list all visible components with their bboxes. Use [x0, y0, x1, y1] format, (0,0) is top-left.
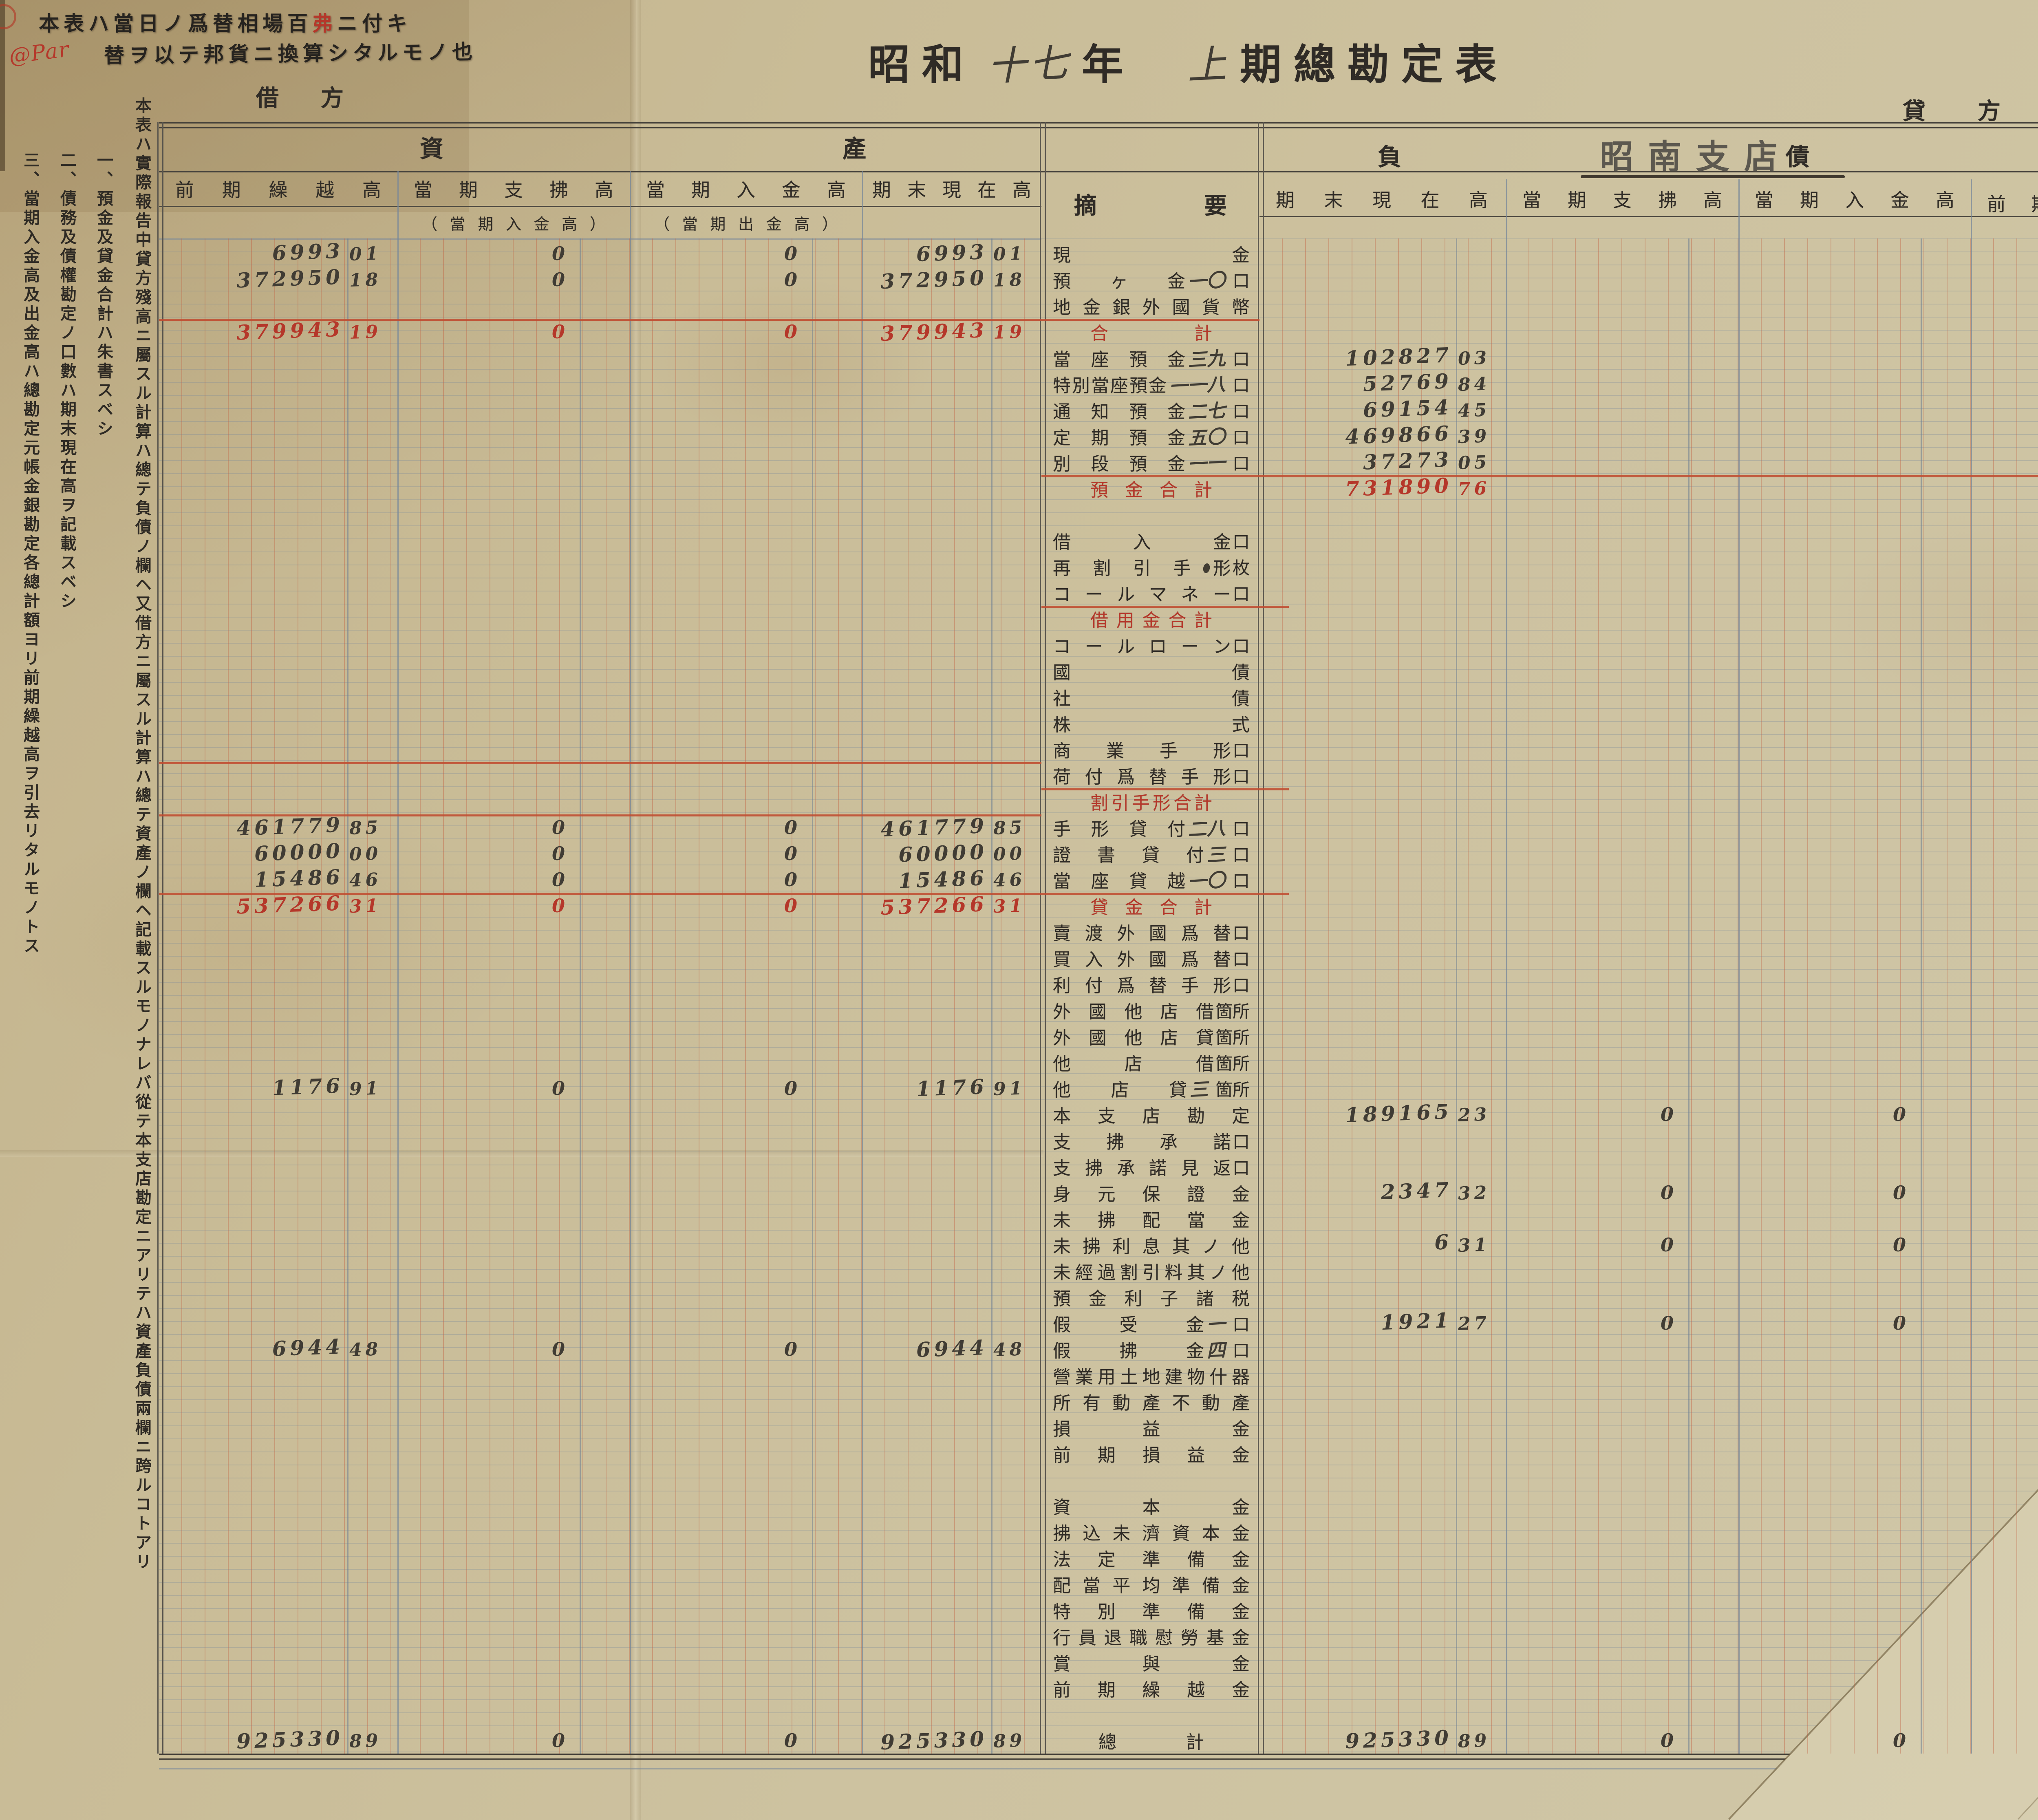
account-row: 當座貸越一〇口	[1041, 867, 1259, 893]
amount-integer: 1921	[1259, 1308, 1458, 1339]
amount-cents: 89	[993, 1729, 1042, 1752]
amount-cents: 23	[1458, 1103, 1506, 1125]
account-unit: 口	[1233, 972, 1250, 997]
amount-integer: 15486	[159, 864, 350, 895]
exchange-rate-stamp-line1: 本表ハ當日ノ爲替相場百弗ニ付キ	[39, 7, 412, 37]
amount-integer: 925330	[159, 1725, 350, 1756]
account-label: 預ヶ金	[1053, 267, 1185, 293]
amount-cell: 0	[630, 1336, 862, 1362]
account-label: 證書貸付	[1053, 841, 1204, 867]
amount-cell: 0	[397, 267, 630, 293]
debit-side-label: 借方	[256, 80, 344, 113]
account-label: 未經過割引料其ノ他	[1053, 1258, 1250, 1284]
account-row: 借入金口	[1041, 527, 1259, 554]
account-label: 株式	[1053, 710, 1250, 736]
account-count-handwritten: 一一	[1187, 448, 1226, 477]
amount-integer: 52769	[1259, 368, 1458, 399]
amount-cents: 00	[349, 842, 398, 865]
account-label: 現金	[1053, 240, 1250, 267]
account-row: 外國他店貸箇所	[1041, 1023, 1259, 1049]
amount-cell: 1548646	[159, 867, 397, 893]
amount-integer: 537266	[159, 890, 350, 921]
amount-cell: 0	[397, 1336, 630, 1362]
account-row: 未經過割引料其ノ他	[1041, 1258, 1259, 1284]
account-unit: 箇所	[1215, 1024, 1250, 1049]
account-row: 外國他店借箇所	[1041, 997, 1259, 1023]
amount-cell: 117691	[862, 1075, 1041, 1101]
money-column-ruling	[159, 238, 397, 1754]
zero-amount: 0	[1738, 1312, 1971, 1334]
amount-cell: 92533089	[1971, 1727, 2038, 1754]
account-row: 損益金	[1041, 1414, 1259, 1441]
amount-cents: 31	[349, 894, 398, 917]
amount-cell: 694448	[159, 1336, 397, 1362]
account-label: 定期預金	[1053, 423, 1185, 449]
amount-cell: 46986639	[1971, 423, 2038, 449]
table-bottom-border	[159, 1754, 2038, 1760]
account-row: 地金銀外國貨幣	[1041, 293, 1259, 319]
sen-separator-line	[991, 238, 993, 1754]
liability-header-received: 當期入金高	[1755, 181, 1954, 216]
margin-note-1: 一、預金及貸金合計ハ朱書スベシ	[88, 152, 119, 1538]
account-row: 社債	[1041, 684, 1259, 710]
account-label: 借入金	[1053, 527, 1231, 554]
amount-integer: 189165	[1259, 1099, 1458, 1130]
account-label: 利付爲替手形	[1053, 971, 1231, 997]
amount-cell: 37994319	[159, 319, 397, 345]
amount-cell: 0	[1506, 1727, 1738, 1754]
zero-amount: 0	[1738, 1234, 1971, 1256]
amount-cell: 694448	[862, 1336, 1041, 1362]
zero-amount: 0	[1506, 1312, 1738, 1334]
account-unit: 口	[1233, 1337, 1250, 1362]
account-row: 前期損益金	[1041, 1441, 1259, 1467]
account-row: 營業用土地建物什器	[1041, 1362, 1259, 1388]
zero-amount: 0	[630, 843, 862, 865]
amount-integer: 1176	[159, 1073, 350, 1103]
amount-cell: 37295018	[862, 267, 1041, 293]
account-label: 所有動產不動產	[1053, 1388, 1250, 1414]
account-label: 支拂承諾	[1053, 1127, 1231, 1154]
amount-cents: 39	[1458, 425, 1506, 447]
account-label: 通知預金	[1053, 397, 1185, 423]
amount-cell: 6000000	[862, 841, 1041, 867]
amount-cents: 91	[993, 1077, 1042, 1099]
account-label: 貸金合計	[1053, 893, 1250, 919]
zero-amount: 0	[1506, 1182, 1738, 1204]
sen-separator-line	[347, 238, 348, 1754]
liability-header-underline	[1259, 216, 2038, 217]
amount-cell: 37994319	[862, 319, 1041, 345]
amount-integer: 102827	[1970, 343, 2038, 373]
money-column-ruling	[630, 238, 862, 1754]
account-count-handwritten: 一〇	[1187, 865, 1226, 894]
asset-section-header: 資產	[159, 122, 1041, 171]
account-unit: 口	[1233, 737, 1250, 762]
amount-integer: 69154	[1259, 395, 1458, 426]
amount-cents: 00	[993, 842, 1042, 865]
zero-amount: 0	[397, 1077, 630, 1099]
margin-note-2: 二、債務及債權勘定ノ口數ハ期末現在高ヲ記載スベシ	[51, 152, 83, 1538]
account-unit: 口	[1233, 424, 1250, 449]
account-unit: 箇所	[1215, 1050, 1250, 1075]
account-count-handwritten: 二八	[1187, 813, 1226, 842]
asset-header-received: 當期入金高	[646, 171, 846, 206]
account-label: 手形貸付	[1053, 814, 1185, 841]
amount-cents: 45	[1458, 399, 1506, 421]
amount-cell: 192127	[1259, 1310, 1506, 1336]
account-row: 本支店勘定	[1041, 1101, 1259, 1127]
account-label: 地金銀外國貨幣	[1053, 293, 1250, 319]
amount-integer: 379943	[862, 318, 994, 346]
account-unit: 口	[1233, 580, 1250, 605]
account-label: 商業手形	[1053, 736, 1231, 762]
title-year-suffix: 年	[1082, 31, 1136, 91]
amount-integer: 37273	[1970, 447, 2038, 478]
amount-cents: 91	[349, 1077, 398, 1099]
account-label: 外國他店借	[1053, 997, 1214, 1023]
amount-integer: 372950	[159, 264, 350, 295]
account-row: 商業手形口	[1041, 736, 1259, 762]
account-unit: 口	[1233, 815, 1250, 840]
stamp-text: ニ付キ	[337, 12, 412, 35]
account-label: 賞與金	[1053, 1649, 1250, 1675]
amount-integer: 379943	[159, 316, 350, 347]
account-label: 特別準備金	[1053, 1597, 1250, 1623]
account-unit: 口	[1233, 920, 1250, 944]
amount-cell: 0	[630, 841, 862, 867]
account-row: 割引手形合計	[1041, 788, 1259, 814]
account-row: 借用金合計	[1041, 606, 1259, 632]
amount-cell: 699301	[159, 240, 397, 267]
amount-cell: 0	[1506, 1310, 1738, 1336]
amount-cents: 46	[349, 868, 398, 891]
stamp-red-char: 弗	[312, 12, 337, 35]
zero-amount: 0	[397, 869, 630, 891]
account-label: 買入外國爲替	[1053, 945, 1231, 971]
account-row: 支拂承諾口	[1041, 1127, 1259, 1154]
amount-integer: 6944	[862, 1335, 994, 1363]
zero-amount: 0	[630, 1730, 862, 1752]
money-column-ruling	[862, 238, 1041, 1754]
zero-amount: 0	[1506, 1103, 1738, 1125]
amount-cell: 0	[397, 841, 630, 867]
margin-note-3: 三、當期入金高及出金高ハ總勘定元帳金銀勘定各總計額ヨリ前期繰越高ヲ引去リタルモノ…	[14, 152, 46, 1538]
zero-amount: 0	[630, 869, 862, 891]
account-unit: 口	[1233, 372, 1250, 397]
amount-cents: 03	[1458, 346, 1506, 369]
account-row: 賞與金	[1041, 1649, 1259, 1675]
account-label: 假拂金	[1053, 1336, 1204, 1362]
account-count-handwritten: 二七	[1187, 396, 1226, 425]
amount-cell: 3727305	[1259, 449, 1506, 475]
amount-integer: 52769	[1970, 369, 2038, 399]
amount-cell: 92533089	[159, 1727, 397, 1754]
amount-cents: 76	[1458, 477, 1506, 499]
amount-cell: 0	[1506, 1101, 1738, 1127]
account-label: 社債	[1053, 684, 1250, 710]
amount-cell: 10282703	[1971, 345, 2038, 371]
amount-integer: 15486	[862, 865, 994, 894]
margin-notes: 一、預金及貸金合計ハ朱書スベシ 二、債務及債權勘定ノ口數ハ期末現在高ヲ記載スベシ…	[11, 152, 119, 1538]
amount-cell: 0	[397, 240, 630, 267]
amount-cell: 117691	[159, 1075, 397, 1101]
amount-cell: 53726631	[862, 893, 1041, 919]
account-row: 他店貸三箇所	[1041, 1075, 1259, 1101]
liability-header-prev-balance: 前期繰越高	[1987, 185, 2038, 220]
account-unit: 口	[1233, 398, 1250, 423]
account-unit: 枚	[1233, 554, 1250, 579]
exchange-rate-stamp-line2: 替ヲ以テ邦貨ニ換算シタルモノ也	[104, 35, 477, 69]
amount-cell: 53726631	[159, 893, 397, 919]
amount-integer: 2347	[1259, 1177, 1458, 1208]
zero-amount: 0	[630, 1077, 862, 1099]
column-divider	[630, 171, 631, 1754]
amount-cents: 18	[993, 268, 1042, 291]
account-label: 損益金	[1053, 1414, 1250, 1441]
account-row: 國債	[1041, 658, 1259, 684]
account-unit: 箇所	[1215, 998, 1250, 1023]
account-row: 預金利子諸税	[1041, 1284, 1259, 1310]
asset-header-paid: 當期支拂高	[414, 171, 613, 206]
amount-cell: 6915445	[1971, 397, 2038, 423]
asset-subheader-received: （當期入金高）	[422, 207, 605, 238]
amount-integer: 925330	[862, 1726, 994, 1755]
amount-cell: 0	[630, 867, 862, 893]
account-label: 前期繰越金	[1053, 1675, 1250, 1701]
amount-cents: 01	[349, 242, 398, 265]
amount-cell: 0	[397, 893, 630, 919]
account-row: 他店借箇所	[1041, 1049, 1259, 1075]
amount-cell: 0	[630, 893, 862, 919]
account-label: 荷付爲替手形	[1053, 762, 1231, 788]
account-label: 當座預金	[1053, 345, 1185, 371]
account-unit: 口	[1233, 633, 1250, 657]
summary-column-header: 摘要	[1041, 173, 1259, 234]
account-unit: 口	[1233, 841, 1250, 866]
account-count-handwritten: 一一八	[1168, 369, 1226, 399]
account-label: 別段預金	[1053, 449, 1185, 475]
amount-integer: 469866	[1259, 421, 1458, 452]
account-label: 當座貸越	[1053, 867, 1185, 893]
amount-cents: 31	[1458, 1233, 1506, 1256]
amount-cell: 0	[397, 867, 630, 893]
account-row: 未拂利息其ノ他	[1041, 1232, 1259, 1258]
liability-header-end-balance: 期末現在高	[1276, 181, 1488, 216]
zero-amount: 0	[630, 895, 862, 917]
account-label: 預金利子諸税	[1053, 1284, 1250, 1310]
credit-side-label: 貸方	[1903, 93, 2001, 126]
account-label: 他店借	[1053, 1049, 1214, 1075]
account-label: 他店貸	[1053, 1075, 1187, 1101]
account-row: コールマネー口	[1041, 580, 1259, 606]
amount-integer: 731890	[1259, 473, 1458, 504]
amount-cell: 0	[1738, 1101, 1971, 1127]
asset-header-prev-balance: 前期繰越高	[175, 171, 381, 206]
amount-cell: 0	[1738, 1727, 1971, 1754]
amount-cell: 46177985	[862, 814, 1041, 841]
title-era: 昭和	[868, 31, 976, 91]
amount-cents: 85	[349, 816, 398, 838]
amount-integer: 469866	[1970, 421, 2038, 452]
amount-cell: 0	[397, 1075, 630, 1101]
amount-integer: 6	[1970, 1230, 2038, 1260]
account-row: 假拂金四口	[1041, 1336, 1259, 1362]
zero-amount: 0	[1738, 1182, 1971, 1204]
zero-amount: 0	[397, 269, 630, 291]
liability-section-header: 負債	[1259, 130, 2038, 179]
account-label: 法定準備金	[1053, 1545, 1250, 1571]
bottom-ledger-line	[159, 1768, 2038, 1769]
account-count-handwritten: 一〇	[1187, 265, 1226, 294]
amount-integer: 925330	[1259, 1725, 1458, 1756]
account-count-handwritten: 三	[1206, 840, 1226, 867]
account-row: 荷付爲替手形口	[1041, 762, 1259, 788]
zero-amount: 0	[630, 816, 862, 838]
amount-cell: 73189076	[1259, 475, 1506, 501]
amount-integer: 6	[1259, 1229, 1458, 1260]
account-label: 身元保證金	[1053, 1180, 1250, 1206]
account-unit: 口	[1233, 1311, 1250, 1336]
account-label: 拂込未濟資本金	[1053, 1519, 1250, 1545]
account-label: 合計	[1053, 319, 1250, 345]
zero-amount: 0	[1738, 1103, 1971, 1125]
amount-cell: 699301	[862, 240, 1041, 267]
account-unit: 口	[1233, 528, 1250, 553]
account-row: 前期繰越金	[1041, 1675, 1259, 1701]
amount-cents: 46	[993, 868, 1042, 891]
account-label: 假受金	[1053, 1310, 1204, 1336]
account-label: コールローン	[1053, 632, 1231, 658]
amount-integer: 60000	[862, 839, 994, 868]
account-row: 當座預金三九口	[1041, 345, 1259, 371]
amount-cell: 0	[630, 814, 862, 841]
amount-cell: 0	[397, 814, 630, 841]
money-column-ruling	[1738, 238, 1971, 1754]
amount-cell: 631	[1971, 1232, 2038, 1258]
amount-cents: 84	[1458, 373, 1506, 395]
amount-integer: 461779	[159, 812, 350, 843]
asset-section-label: 資產	[420, 130, 866, 164]
account-row: 通知預金二七口	[1041, 397, 1259, 423]
amount-integer: 6993	[862, 239, 994, 268]
amount-cell: 0	[397, 319, 630, 345]
account-label: 割引手形合計	[1053, 788, 1250, 814]
column-divider	[1738, 179, 1740, 1754]
zero-amount: 0	[397, 1730, 630, 1752]
account-row: 手形貸付二八口	[1041, 814, 1259, 841]
amount-cents: 48	[349, 1338, 398, 1360]
amount-cents: 89	[349, 1729, 398, 1752]
amount-cell: 37295018	[159, 267, 397, 293]
account-row: 別段預金一一口	[1041, 449, 1259, 475]
account-row: 證書貸付三口	[1041, 841, 1259, 867]
title-term-handwritten: 上	[1185, 32, 1230, 90]
account-row: 預金合計	[1041, 475, 1259, 501]
zero-amount: 0	[630, 1338, 862, 1360]
amount-cell: 73189076	[1971, 475, 2038, 501]
account-row: 定期預金五〇口	[1041, 423, 1259, 449]
amount-cell: 18916523	[1259, 1101, 1506, 1127]
amount-cents: 19	[993, 320, 1042, 343]
account-row: 拂込未濟資本金	[1041, 1519, 1259, 1545]
title-year-handwritten: 十七	[986, 31, 1072, 91]
amount-cell: 10282703	[1259, 345, 1506, 371]
zero-amount: 0	[397, 243, 630, 265]
amount-cell: 0	[1506, 1180, 1738, 1206]
account-label: 預金合計	[1053, 475, 1250, 501]
scanned-ledger-page: 本表ハ當日ノ爲替相場百弗ニ付キ 替ヲ以テ邦貨ニ換算シタルモノ也 @Par 昭和 …	[0, 0, 2038, 1820]
amount-integer: 372950	[862, 265, 994, 294]
zero-amount: 0	[1738, 1730, 1971, 1752]
amount-integer: 731890	[1970, 473, 2038, 504]
sen-separator-line	[580, 238, 581, 1754]
account-row: 行員退職慰勞基金	[1041, 1623, 1259, 1649]
zero-amount: 0	[630, 269, 862, 291]
account-label: 賣渡外國爲替	[1053, 919, 1231, 945]
account-unit: 口	[1233, 946, 1250, 971]
account-count-handwritten: 三九	[1187, 344, 1226, 373]
account-unit: 口	[1233, 450, 1250, 475]
account-unit: 口	[1233, 1154, 1250, 1179]
liability-section-label: 負債	[1378, 138, 1809, 172]
account-count-handwritten: 五〇	[1187, 422, 1226, 451]
zero-amount: 0	[397, 895, 630, 917]
zero-amount: 0	[397, 321, 630, 343]
amount-integer: 6944	[159, 1334, 350, 1364]
amount-cents: 01	[993, 242, 1042, 265]
asset-subheader-withdrawn: （當期出金高）	[654, 207, 838, 238]
account-label: 未拂利息其ノ他	[1053, 1232, 1250, 1258]
account-row: 貸金合計	[1041, 893, 1259, 919]
margin-note-main: 本表ハ實際報告中貸方殘高ニ屬スル計算ハ總テ負債ノ欄ヘ又借方ニ屬スル計算ハ總テ資產…	[119, 97, 158, 1638]
amount-integer: 60000	[159, 838, 350, 869]
account-row: 未拂配當金	[1041, 1206, 1259, 1232]
account-row: 身元保證金	[1041, 1180, 1259, 1206]
account-label: 外國他店貸	[1053, 1023, 1214, 1049]
account-label: 再割引手形	[1053, 554, 1231, 580]
amount-cell: 5276984	[1259, 371, 1506, 397]
amount-cell: 0	[630, 1075, 862, 1101]
account-row: 特別當座預金一一八口	[1041, 371, 1259, 397]
sen-separator-line	[1921, 238, 1922, 1754]
zero-amount: 0	[397, 843, 630, 865]
account-row: 預ヶ金一〇口	[1041, 267, 1259, 293]
account-row: 現金	[1041, 240, 1259, 267]
account-label: 總計	[1053, 1727, 1250, 1754]
amount-cents: 32	[1458, 1181, 1506, 1204]
account-label: 營業用土地建物什器	[1053, 1362, 1250, 1388]
amount-integer: 189165	[1970, 1099, 2038, 1130]
account-row: 買入外國爲替口	[1041, 945, 1259, 971]
amount-integer: 461779	[862, 813, 994, 842]
amount-cell: 0	[630, 1727, 862, 1754]
account-label: 配當平均準備金	[1053, 1571, 1250, 1597]
amount-cell: 0	[630, 319, 862, 345]
amount-cell: 0	[397, 1727, 630, 1754]
account-label: 資本金	[1053, 1493, 1250, 1519]
account-label: 前期損益金	[1053, 1441, 1250, 1467]
amount-integer: 2347	[1970, 1178, 2038, 1208]
stamp-text: 本表ハ當日ノ爲替相場百	[39, 12, 312, 35]
amount-cell: 46177985	[159, 814, 397, 841]
amount-integer: 1176	[862, 1074, 994, 1103]
amount-cents: 85	[993, 816, 1042, 838]
zero-amount: 0	[630, 321, 862, 343]
zero-amount: 0	[397, 816, 630, 838]
account-label: 本支店勘定	[1053, 1101, 1250, 1127]
account-label: 國債	[1053, 658, 1250, 684]
